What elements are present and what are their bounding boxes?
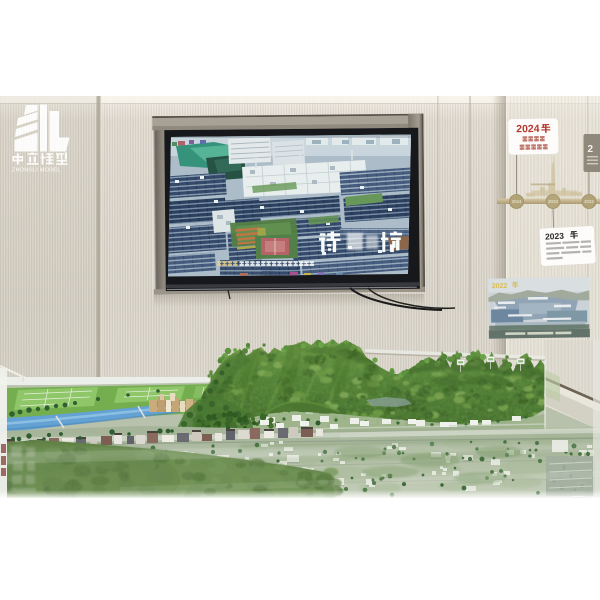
svg-text:2: 2 (588, 144, 594, 155)
svg-text:2023: 2023 (548, 199, 558, 204)
svg-text:ZHONGLI MODEL: ZHONGLI MODEL (12, 168, 61, 174)
svg-text:2022: 2022 (492, 283, 508, 290)
svg-text:2024: 2024 (512, 199, 522, 204)
svg-text:2024: 2024 (516, 123, 540, 135)
svg-text:2022: 2022 (584, 199, 594, 204)
svg-text:2023: 2023 (545, 231, 565, 242)
